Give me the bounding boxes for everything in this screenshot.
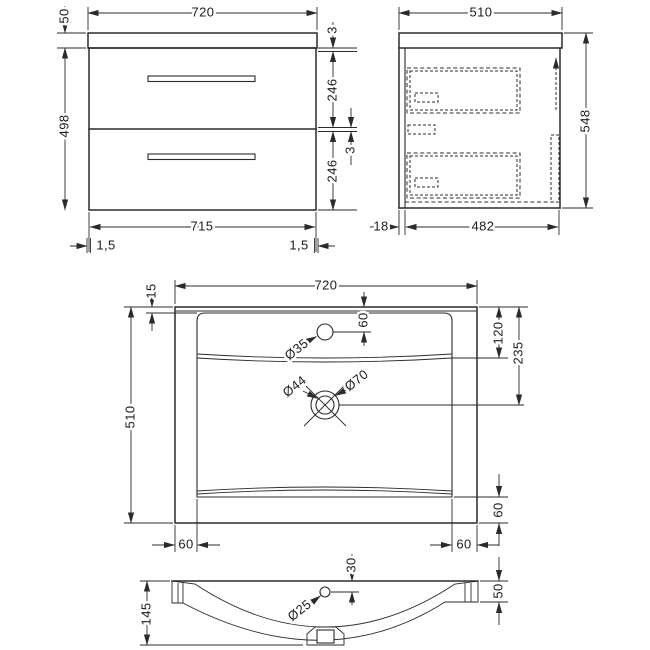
dim-front-width-bottom: 715 (191, 218, 214, 233)
dim-tap-hole-dia: Ø35 (282, 335, 312, 363)
drawer-box-2-inner-hidden (410, 156, 517, 195)
dim-gap-top: 3 (324, 26, 339, 34)
dim-drawer2-height: 246 (324, 160, 339, 183)
dim-plan-depth: 510 (122, 406, 137, 429)
plan-view: Ø35 60 Ø44 Ø70 720 15 510 120 (122, 277, 528, 552)
dim-rim-front: 60 (490, 502, 505, 517)
dim-waste-center-depth: 235 (510, 342, 525, 365)
dim-offset-right: 1,5 (289, 237, 308, 252)
worktop-side (399, 33, 562, 48)
dim-body-depth: 482 (472, 218, 495, 233)
bowl-back-curve-2 (197, 358, 452, 362)
dim-basin-height: 145 (138, 603, 153, 626)
dim-bowl-back-depth: 120 (490, 322, 505, 345)
overflow-hole (320, 587, 330, 597)
drawer-handle-2 (148, 154, 255, 160)
front-elevation-view: 720 50 498 3 246 3 246 715 1,5 (56, 4, 357, 253)
drawing-canvas: 720 50 498 3 246 3 246 715 1,5 (0, 0, 650, 650)
dim-drawer1-height: 246 (324, 79, 339, 102)
section-view: Ø25 30 50 145 (138, 554, 508, 645)
dim-front-width-top: 720 (192, 4, 215, 19)
drawer-box-2-hidden (407, 153, 520, 198)
dim-worktop-height: 50 (56, 8, 71, 23)
dim-tap-hole-offset: 60 (355, 312, 370, 327)
drawer-runner-2-hidden (415, 178, 438, 187)
dim-rim-right: 60 (456, 536, 471, 551)
tap-hole (317, 324, 333, 340)
dim-side-depth-top: 510 (470, 4, 493, 19)
front-panel-hidden (551, 135, 559, 202)
drawer-box-1-hidden (407, 68, 520, 113)
worktop-front (88, 33, 317, 48)
dim-overflow-dia: Ø25 (285, 596, 315, 624)
dim-waste-dia-inner: Ø44 (280, 372, 310, 400)
dim-gap-middle: 3 (342, 146, 357, 154)
dim-body-height: 498 (56, 115, 71, 138)
bowl-back-curve-1 (197, 354, 452, 358)
dim-plan-width: 720 (315, 277, 338, 292)
dim-overflow-offset: 30 (343, 557, 358, 572)
dim-back-offset: 18 (373, 218, 388, 233)
dim-back-rim: 15 (143, 283, 158, 298)
bracket-hidden (408, 125, 435, 134)
technical-drawing-vanity-unit: 720 50 498 3 246 3 246 715 1,5 (0, 0, 650, 650)
waste-hole-section (317, 630, 334, 643)
dim-rim-left: 60 (178, 536, 193, 551)
side-elevation-view: 510 548 18 482 (370, 4, 593, 235)
drawer-box-1-inner-hidden (410, 71, 517, 110)
drawer-handle-1 (148, 76, 255, 82)
dim-edge-height: 50 (490, 583, 505, 598)
bowl-front-curve-1 (197, 490, 452, 494)
dim-side-height: 548 (577, 110, 592, 133)
dim-offset-left: 1,5 (96, 237, 115, 252)
drawer-runner-1-hidden (415, 93, 438, 102)
